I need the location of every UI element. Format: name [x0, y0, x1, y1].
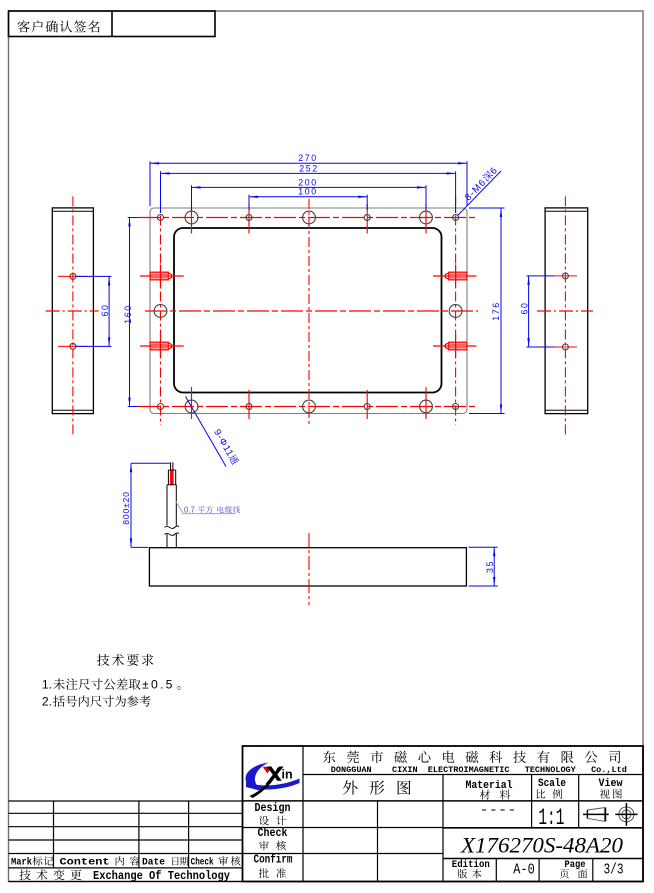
svg-text:A-0: A-0 — [513, 862, 535, 879]
svg-text:Check: Check — [191, 857, 214, 869]
svg-text:X176270S-48A20: X176270S-48A20 — [460, 833, 623, 858]
svg-text:View: View — [599, 778, 623, 790]
svg-text:1:1: 1:1 — [538, 805, 564, 831]
svg-text:Date: Date — [142, 858, 165, 869]
svg-text:252: 252 — [299, 163, 318, 173]
svg-text:DONGGUAN CIXIN ELECTROIMAG: DONGGUAN CIXIN ELECTROIMAGNETIC TECHNOLO… — [331, 765, 627, 775]
svg-text:Design: Design — [255, 802, 291, 815]
svg-text:800±20: 800±20 — [121, 491, 131, 524]
svg-text:100: 100 — [298, 187, 317, 197]
svg-text:Edition: Edition — [452, 859, 490, 870]
svg-text:in: in — [282, 768, 293, 782]
svg-text:Check: Check — [258, 827, 288, 840]
svg-text:±0.5: ±0.5 — [142, 678, 175, 692]
svg-text:3/3: 3/3 — [604, 862, 624, 879]
svg-text:60: 60 — [520, 302, 530, 315]
svg-text:Scale: Scale — [538, 778, 566, 790]
svg-text:176: 176 — [491, 301, 501, 320]
svg-text:Content: Content — [60, 858, 110, 869]
svg-text:----: ---- — [480, 803, 517, 818]
svg-text:270: 270 — [298, 153, 317, 163]
svg-text:Page: Page — [565, 859, 586, 870]
svg-text:35: 35 — [485, 560, 495, 573]
svg-text:0.7: 0.7 — [184, 505, 195, 514]
svg-text:Mark: Mark — [11, 857, 32, 868]
svg-text:Material: Material — [466, 780, 513, 792]
svg-text:Confirm: Confirm — [254, 854, 293, 867]
svg-text:160: 160 — [123, 304, 133, 323]
svg-text:2.: 2. — [42, 695, 52, 709]
svg-text:60: 60 — [100, 304, 110, 317]
svg-text:Exchange Of Technology: Exchange Of Technology — [93, 869, 230, 883]
svg-text:1.: 1. — [42, 678, 52, 692]
